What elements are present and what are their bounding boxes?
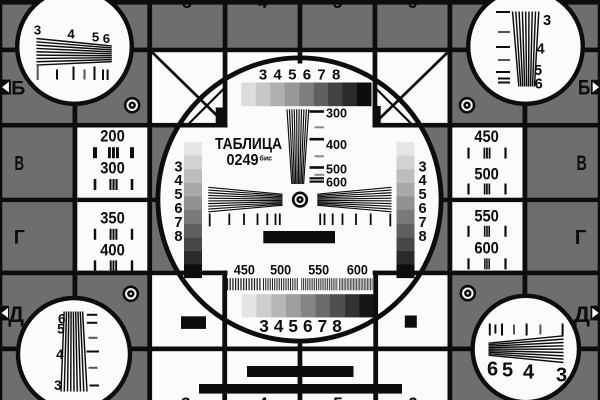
svg-text:5: 5	[288, 67, 296, 84]
svg-text:3: 3	[259, 67, 267, 84]
svg-text:Д: Д	[574, 302, 591, 327]
svg-text:300: 300	[100, 160, 125, 178]
svg-text:600: 600	[347, 263, 368, 278]
svg-text:5: 5	[333, 0, 343, 12]
svg-text:450: 450	[474, 128, 499, 146]
svg-text:400: 400	[326, 138, 347, 152]
svg-text:Г: Г	[575, 226, 587, 249]
svg-text:4: 4	[258, 393, 268, 400]
svg-text:4: 4	[274, 316, 284, 336]
svg-text:3: 3	[181, 393, 191, 400]
svg-text:7: 7	[318, 316, 328, 336]
svg-text:4: 4	[258, 0, 268, 12]
svg-text:3: 3	[54, 378, 61, 393]
svg-text:4: 4	[56, 347, 64, 362]
svg-text:3: 3	[543, 13, 551, 29]
svg-text:550: 550	[308, 263, 329, 278]
svg-text:6: 6	[487, 358, 498, 380]
svg-text:6: 6	[303, 67, 311, 84]
svg-text:3: 3	[182, 0, 192, 12]
svg-text:4: 4	[537, 42, 546, 58]
svg-text:500: 500	[474, 165, 499, 183]
svg-text:400: 400	[100, 241, 125, 259]
svg-text:6: 6	[408, 0, 418, 12]
svg-text:5: 5	[92, 29, 99, 44]
svg-text:Б: Б	[578, 76, 590, 99]
svg-text:В: В	[577, 152, 587, 175]
svg-text:В: В	[15, 153, 25, 175]
svg-text:3: 3	[34, 23, 41, 38]
svg-text:ТАБЛИЦА: ТАБЛИЦА	[215, 136, 282, 153]
svg-text:6: 6	[303, 316, 313, 336]
svg-text:6: 6	[535, 77, 543, 93]
svg-text:600: 600	[474, 239, 499, 257]
svg-text:5: 5	[57, 322, 65, 337]
svg-text:200: 200	[100, 128, 125, 146]
svg-text:5: 5	[502, 359, 513, 381]
svg-text:5: 5	[288, 316, 298, 336]
svg-text:600: 600	[326, 175, 347, 189]
svg-text:8: 8	[419, 229, 427, 245]
svg-text:6: 6	[103, 31, 110, 46]
svg-text:5: 5	[333, 393, 343, 400]
svg-text:Б: Б	[11, 77, 25, 99]
svg-text:8: 8	[332, 67, 340, 84]
svg-text:8: 8	[174, 229, 182, 245]
svg-text:550: 550	[474, 207, 499, 225]
svg-text:8: 8	[332, 316, 342, 336]
svg-text:Д: Д	[8, 302, 24, 327]
svg-text:бис: бис	[260, 155, 273, 163]
svg-text:450: 450	[234, 263, 255, 278]
svg-text:4: 4	[273, 67, 282, 84]
svg-text:500: 500	[270, 263, 291, 278]
svg-text:4: 4	[67, 26, 75, 41]
svg-text:4: 4	[523, 361, 535, 383]
svg-text:6: 6	[408, 393, 418, 400]
svg-text:3: 3	[259, 316, 269, 336]
svg-text:350: 350	[100, 209, 125, 227]
svg-text:3: 3	[556, 364, 567, 386]
svg-text:7: 7	[317, 67, 325, 84]
svg-text:Г: Г	[14, 227, 25, 249]
svg-text:0249: 0249	[227, 152, 259, 169]
svg-text:500: 500	[326, 162, 347, 176]
svg-text:300: 300	[326, 107, 347, 121]
